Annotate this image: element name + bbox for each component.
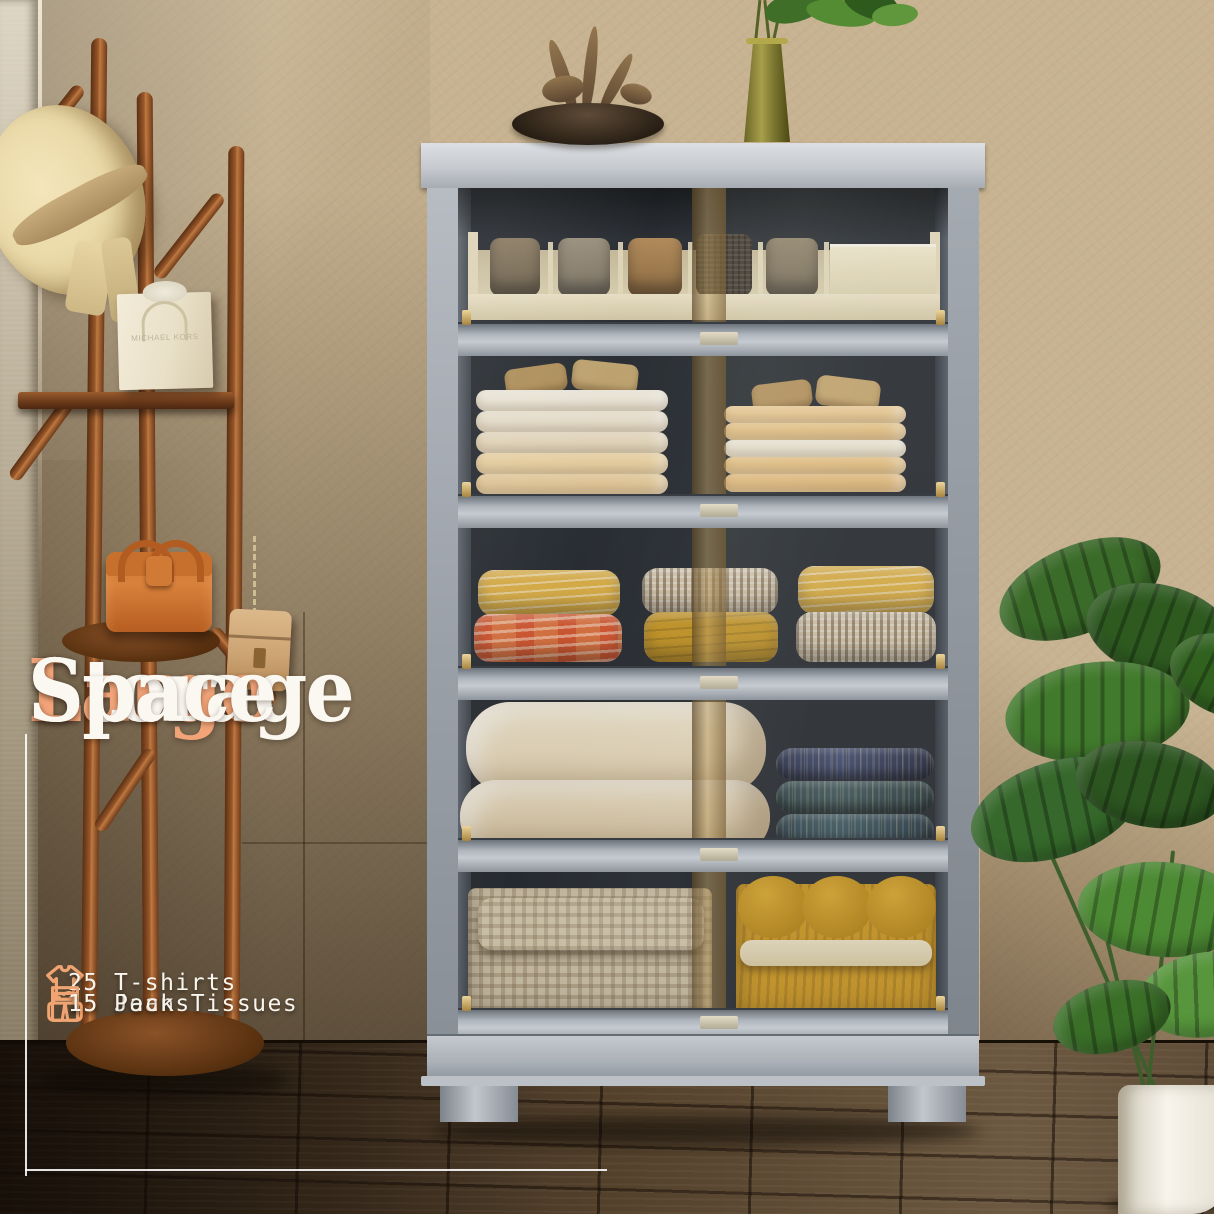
headline-word-space: Space [28, 642, 276, 742]
decor-bowl [512, 103, 664, 145]
door-hinge [936, 654, 945, 669]
door-hinge [936, 826, 945, 841]
door-handle [700, 676, 738, 689]
door-hinge [462, 996, 471, 1011]
feature-label: 15 Pack Tissues [68, 991, 298, 1017]
cabinet-base [427, 1034, 979, 1080]
door-hinge [936, 482, 945, 497]
coat-rack-base [66, 1010, 264, 1076]
accent-vertical-line [25, 734, 27, 1176]
brass-center-strip [692, 188, 726, 1034]
glass-door-right-sheen [726, 188, 935, 1034]
product-marketing-image: MICHAEL KORS [0, 0, 1214, 1214]
cabinet-foot [888, 1086, 966, 1122]
bag-chain-strap [253, 536, 256, 614]
crossbody-flap-seam [229, 634, 291, 640]
door-hinge [462, 310, 471, 325]
cabinet-foot [440, 1086, 518, 1122]
handbag-clasp [146, 556, 172, 586]
cabinet-base-lip [421, 1076, 985, 1086]
cabinet-right-side [948, 188, 979, 1034]
door-hinge [462, 482, 471, 497]
cabinet-left-side [427, 188, 458, 1034]
white-planter-pot [1118, 1085, 1214, 1214]
vase-rim [746, 38, 788, 44]
corner-highlight [38, 0, 42, 620]
door-hinge [462, 826, 471, 841]
shopping-bag: MICHAEL KORS [117, 292, 213, 390]
shopping-bag-brand-text: MICHAEL KORS [118, 332, 212, 343]
door-hinge [462, 654, 471, 669]
door-handle [700, 1016, 738, 1029]
coat-rack-shelf [18, 392, 234, 409]
accent-horizontal-line [25, 1169, 607, 1171]
door-handle [700, 504, 738, 517]
door-hinge [936, 310, 945, 325]
door-hinge [936, 996, 945, 1011]
cabinet-top-panel [421, 143, 985, 188]
door-handle [700, 848, 738, 861]
orange-handbag [106, 552, 212, 632]
door-handle [700, 332, 738, 345]
